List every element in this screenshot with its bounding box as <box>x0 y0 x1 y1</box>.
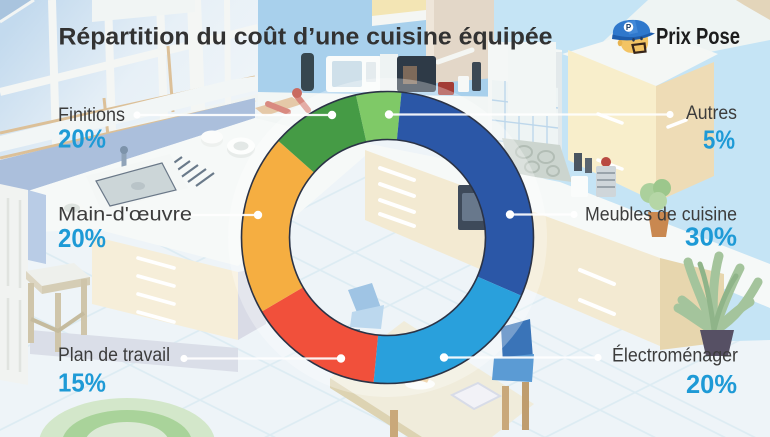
svg-text:P: P <box>626 23 632 32</box>
svg-text:Prix Pose: Prix Pose <box>656 23 740 49</box>
svg-text:20%: 20% <box>58 223 106 253</box>
svg-text:Répartition du coût d’une cuis: Répartition du coût d’une cuisine équipé… <box>59 24 553 51</box>
svg-text:5%: 5% <box>703 125 735 155</box>
svg-text:15%: 15% <box>58 368 106 398</box>
svg-text:20%: 20% <box>686 369 737 399</box>
svg-text:Électroménager: Électroménager <box>612 346 739 367</box>
svg-text:30%: 30% <box>685 222 737 252</box>
svg-text:20%: 20% <box>58 124 106 154</box>
svg-text:Autres: Autres <box>686 103 737 124</box>
svg-text:Plan de travail: Plan de travail <box>58 345 170 366</box>
